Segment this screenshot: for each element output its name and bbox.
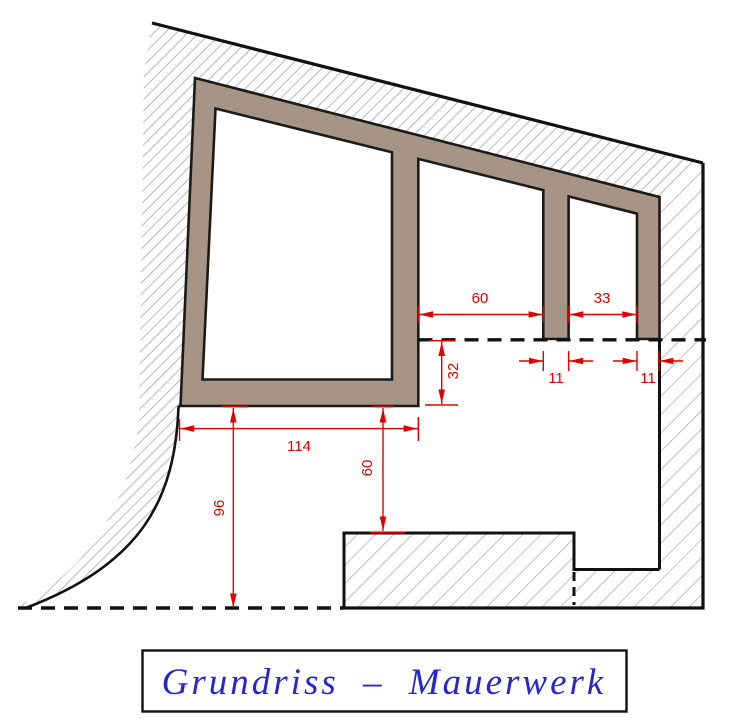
hatch-foundation-block xyxy=(344,533,574,607)
dim-label-33: 33 xyxy=(594,290,611,307)
dimension-pillar-mid: 11 xyxy=(519,351,593,387)
hatch-regions xyxy=(18,23,703,608)
hatch-left-band xyxy=(18,23,195,608)
dim-label-11-right: 11 xyxy=(640,370,656,387)
title-block: Grundriss – Mauerwerk xyxy=(143,651,627,712)
dimension-foundation-offset: 60 xyxy=(359,407,405,533)
floor-plan-drawing: 60 33 11 11 32 xyxy=(0,0,747,725)
dimension-opening-right: 33 xyxy=(569,290,637,323)
dim-label-32: 32 xyxy=(445,363,462,380)
dimension-section-offset: 32 xyxy=(425,341,462,405)
dim-label-60-vertical: 60 xyxy=(359,460,376,477)
dim-label-96: 96 xyxy=(211,500,228,517)
dimension-opening-top: 60 xyxy=(418,290,543,323)
dim-label-114: 114 xyxy=(287,438,311,455)
dim-label-60-top: 60 xyxy=(472,290,489,307)
title-text: Grundriss – Mauerwerk xyxy=(162,662,607,703)
floor-plan-page: 60 33 11 11 32 xyxy=(0,0,747,725)
dimension-ground-height: 96 xyxy=(211,407,248,608)
dim-label-11-mid: 11 xyxy=(548,370,564,387)
